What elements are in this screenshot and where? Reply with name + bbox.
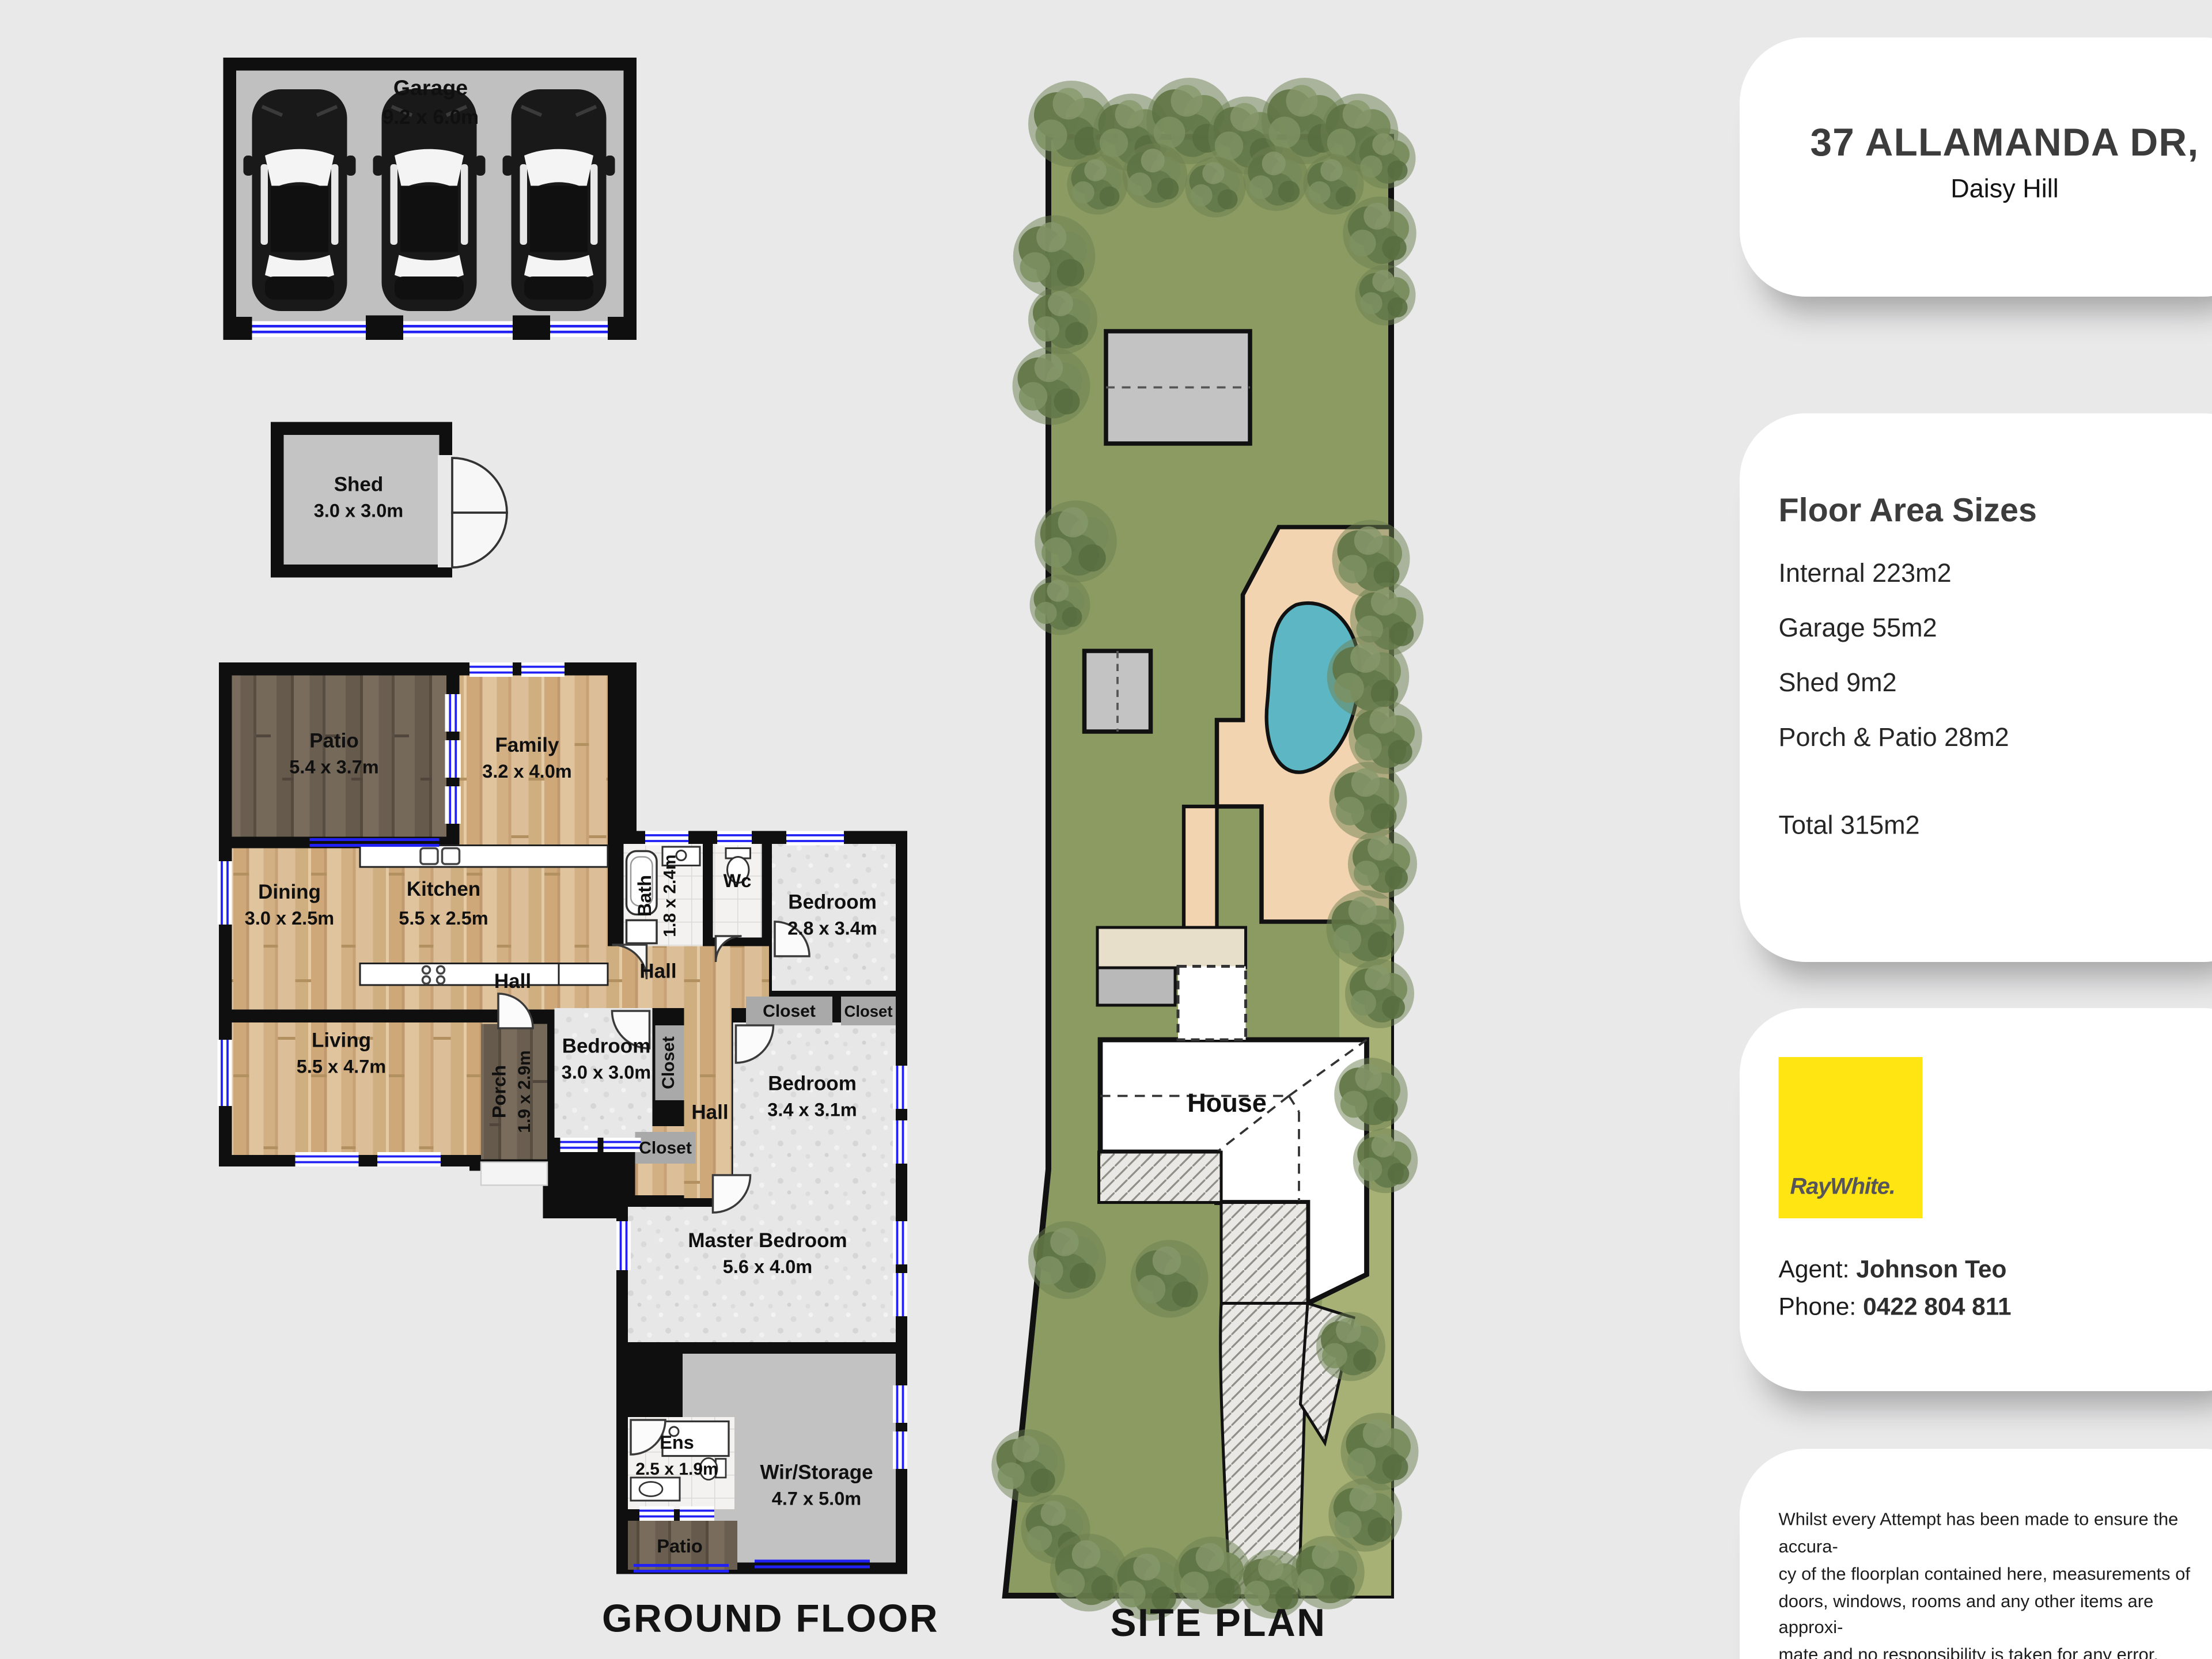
raywhite-logo: RayWhite. [1779,1057,1923,1218]
label-closet-a: Closet [763,1002,816,1021]
caption-ground-floor: GROUND FLOOR [602,1597,939,1641]
vanity-icon [631,1478,680,1501]
label-wir: Wir/Storage [760,1461,873,1484]
site-utility-pad [1097,968,1175,1005]
phone-label: Phone: [1779,1293,1857,1321]
dims-wir: 4.7 x 5.0m [772,1488,861,1509]
dims-bath: 1.8 x 2.4m [661,854,680,937]
agent-label: Agent: [1779,1256,1850,1283]
shed-door [452,458,507,513]
floor-area-internal: Internal 223m2 [1779,559,2212,589]
phone-line: Phone: 0422 804 811 [1779,1293,2212,1322]
site-path [1184,806,1217,930]
shower-icon [627,921,657,944]
dims-bedroom-rear: 2.8 x 3.4m [787,918,877,939]
dims-porch: 1.9 x 2.9m [515,1050,534,1132]
dims-dining: 3.0 x 2.5m [245,908,334,929]
label-wc: Wc [724,870,752,891]
floor-area-shed: Shed 9m2 [1779,668,2212,699]
floor-area-total: Total 315m2 [1779,811,2212,842]
ground-floor-plan: Patio 5.4 x 3.7m Family 3.2 x 4.0m Dinin… [218,662,908,1574]
address-card: 37 ALLAMANDA DR, Daisy Hill [1740,37,2212,297]
floorplan-page: House [0,0,2212,1659]
label-kitchen: Kitchen [407,878,480,900]
car-icon [503,89,615,311]
label-bedroom-mid: Bedroom [562,1035,651,1058]
dims-bedroom-mid: 3.0 x 3.0m [562,1062,651,1083]
label-bedroom-front: Bedroom [768,1073,857,1095]
property-suburb: Daisy Hill [1740,175,2212,205]
shed-plan: Shed 3.0 x 3.0m [271,422,507,578]
shed-label: Shed [334,474,384,496]
agent-line: Agent: Johnson Teo [1779,1256,2212,1285]
site-house-label: House [1187,1088,1267,1118]
label-patio-bottom: Patio [657,1536,702,1556]
label-hall-mid: Hall [639,960,676,983]
raywhite-logo-text: RayWhite. [1790,1175,1895,1201]
label-patio-top: Patio [309,730,359,752]
disclaimer-card: Whilst every Attempt has been made to en… [1740,1449,2212,1659]
dims-kitchen: 5.5 x 2.5m [399,908,488,929]
disclaimer-text: Whilst every Attempt has been made to en… [1779,1506,2212,1659]
car-icon [244,89,356,311]
label-closet-b: Closet [844,1002,892,1020]
floor-area-porch-patio: Porch & Patio 28m2 [1779,723,2212,753]
label-closet-d: Closet [639,1139,692,1158]
shed-door [452,513,507,567]
agent-card: RayWhite. Agent: Johnson Teo Phone: 0422… [1740,1008,2212,1391]
label-hall-lower: Hall [691,1101,728,1124]
label-bedroom-rear: Bedroom [788,891,877,914]
dims-master: 5.6 x 4.0m [723,1256,812,1277]
hall-upper-floor [608,946,769,1009]
dims-living: 5.5 x 4.7m [297,1056,386,1077]
label-dining: Dining [258,881,321,903]
dims-bedroom-front: 3.4 x 3.1m [767,1100,857,1120]
dims-patio-top: 5.4 x 3.7m [289,757,378,778]
garage-plan: Garage 9.2 x 6.0m [224,58,637,340]
site-rear-patio [1097,927,1246,968]
floor-area-card: Floor Area Sizes Internal 223m2 Garage 5… [1740,414,2212,963]
label-hall-upper: Hall [494,970,531,993]
shed-dims: 3.0 x 3.0m [314,501,403,521]
floor-area-title: Floor Area Sizes [1779,491,2212,531]
label-porch: Porch [489,1065,510,1118]
label-bath: Bath [634,875,655,916]
agent-name: Johnson Teo [1856,1256,2006,1283]
property-address: 37 ALLAMANDA DR, [1740,121,2212,166]
label-closet-c: Closet [659,1036,678,1089]
room-living [232,1022,522,1155]
label-living: Living [312,1029,371,1052]
dims-family: 3.2 x 4.0m [482,761,571,782]
caption-site-plan: SITE PLAN [1110,1601,1326,1645]
site-plan: House [991,78,1423,1621]
label-family: Family [495,734,559,756]
site-house-porch [1178,967,1246,1040]
phone-number: 0422 804 811 [1863,1293,2012,1321]
garage-dims: 9.2 x 6.0m [382,106,479,128]
garage-label: Garage [393,75,468,100]
floor-area-garage: Garage 55m2 [1779,613,2212,644]
dims-ens: 2.5 x 1.9m [635,1460,718,1479]
label-master: Master Bedroom [688,1229,847,1252]
label-ens: Ens [660,1432,694,1453]
